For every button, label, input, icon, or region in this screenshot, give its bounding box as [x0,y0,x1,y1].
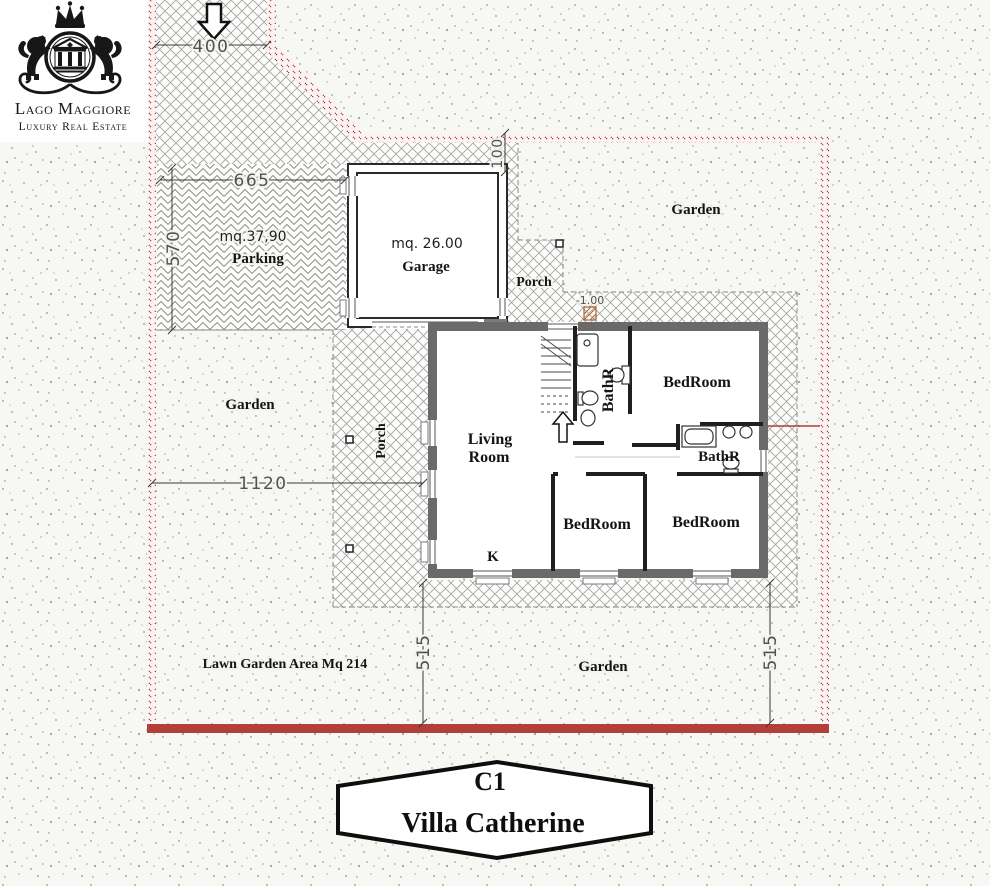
garden-top-label: Garden [671,202,721,218]
kitchen-label: K [487,549,499,565]
dim-garden-depth-right: 515 [761,634,781,671]
dim-garden-depth-left: 515 [414,634,434,671]
bedroom-middle-label: BedRoom [563,516,631,533]
floor-plan-drawing: 400 665 570 100 1120 515 515 -1.00 mq.37… [0,0,990,886]
bath-main-label: BathR [600,367,617,412]
parking-label: Parking [232,251,284,267]
garage-area-label: mq. 26.00 [391,236,463,252]
bath-second-label: BathR [698,449,740,465]
garden-bottom-label: Garden [578,659,628,675]
villa-code: C1 [474,767,506,796]
bedroom-right-label: BedRoom [672,514,740,531]
porch-top-label: Porch [516,275,552,290]
house-window [421,540,437,564]
garage-window [340,298,359,318]
temple-icon [46,33,94,81]
house-window [421,470,437,498]
lawn-area-label: Lawn Garden Area Mq 214 [203,657,368,672]
parking-area-label: mq.37,90 [219,229,286,245]
house-window [580,569,618,584]
logo-title: Lago Maggiore [15,99,131,118]
living-room-label-line2: Room [469,449,511,466]
villa-name: Villa Catherine [401,808,584,839]
house-window [693,569,731,584]
house-window [421,420,437,446]
dim-parking-width: 665 [234,171,271,191]
dim-garden-width: 1120 [238,474,287,494]
house-window [759,450,768,472]
living-room-label-line1: Living [468,431,512,448]
garage-label: Garage [402,259,450,275]
porch-left-label: Porch [374,423,389,459]
logo-subtitle: Luxury Real Estate [19,121,128,133]
garage-window [340,176,359,196]
dim-garage-offset: 100 [490,137,506,168]
agency-logo: Lago Maggiore Luxury Real Estate [0,0,148,142]
dim-parking-depth: 570 [164,230,184,267]
house-window [473,569,512,584]
garage-side-door [497,298,508,316]
dim-entry-level: -1.00 [576,294,604,307]
floor-plan-sheet: 400 665 570 100 1120 515 515 -1.00 mq.37… [0,0,990,886]
bedroom-master-label: BedRoom [663,374,731,391]
garden-left-label: Garden [225,397,275,413]
dim-entrance-width: 400 [193,37,230,57]
boundary-south-line [147,724,829,733]
